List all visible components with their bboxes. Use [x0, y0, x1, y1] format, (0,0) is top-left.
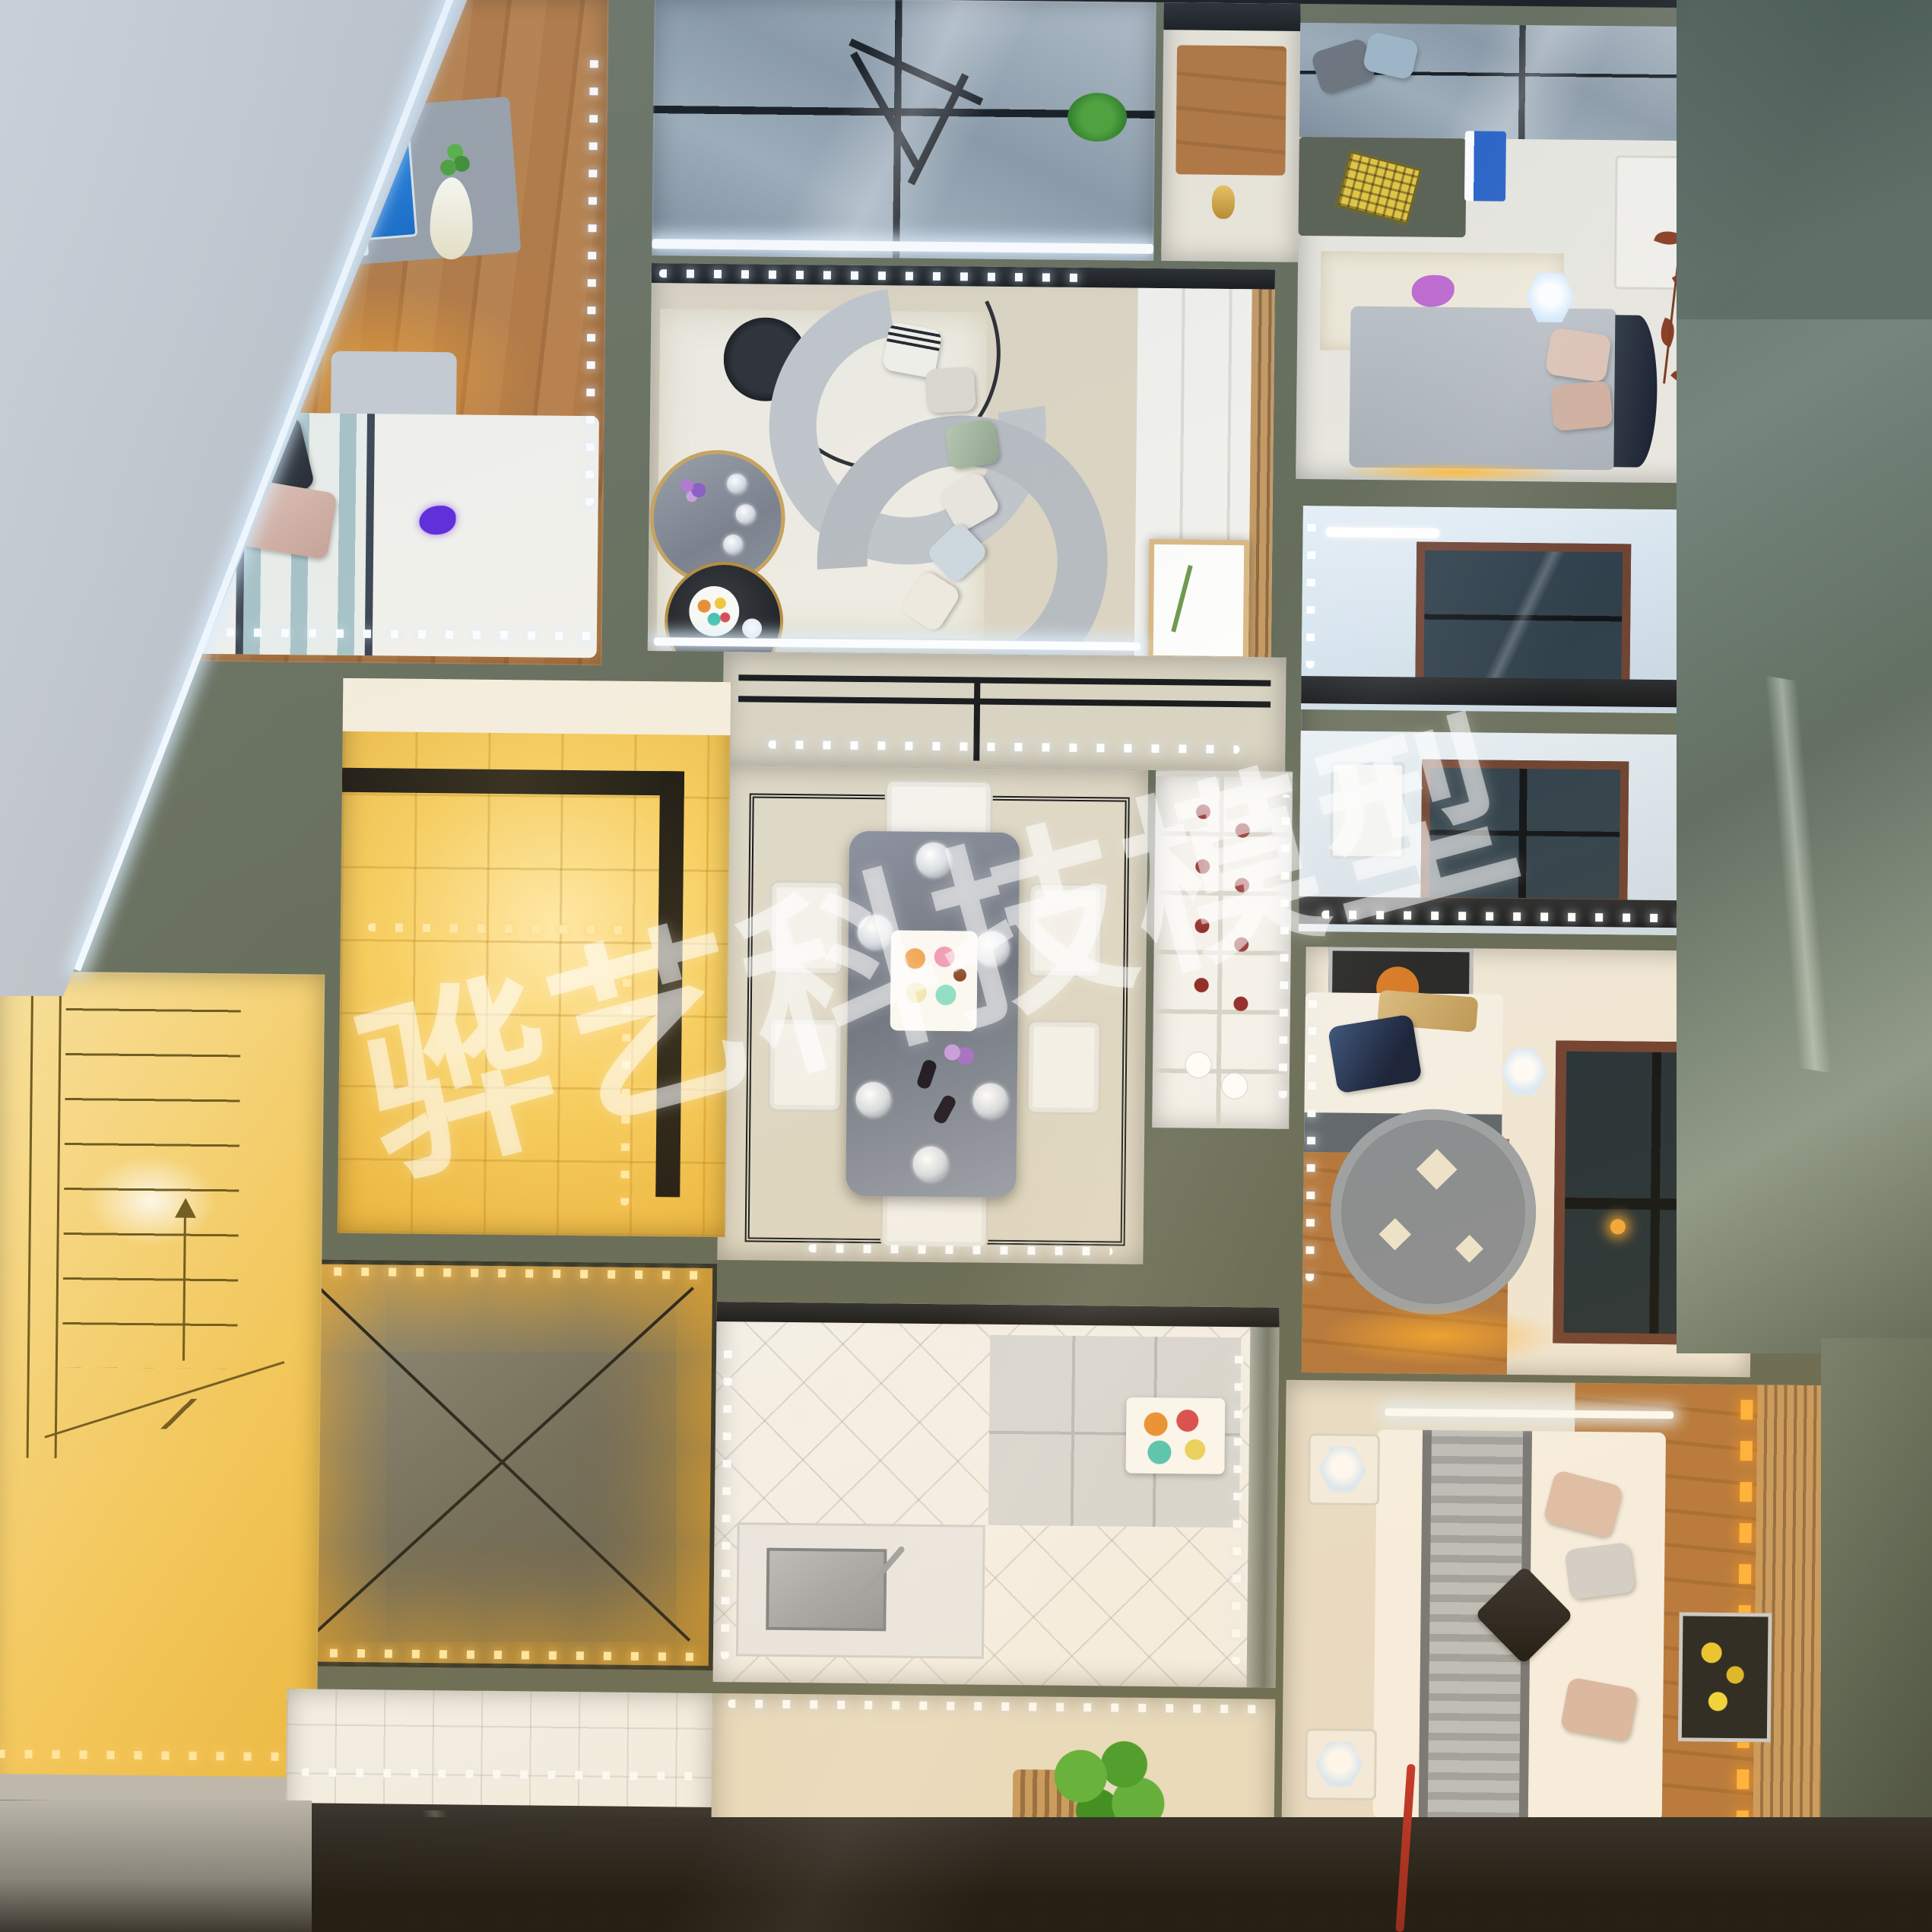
wood-slat-trim [1248, 289, 1275, 657]
living-room [648, 263, 1275, 658]
break-symbol [156, 1398, 201, 1429]
warm-underglow [1317, 1304, 1561, 1367]
kitchen [713, 1302, 1280, 1688]
bed-underglow [1341, 462, 1569, 484]
metal-table-silhouette [849, 39, 983, 106]
tv-feature-wall [1134, 288, 1275, 658]
potted-plant [1068, 93, 1128, 142]
navy-pillow [1328, 1014, 1423, 1093]
steel-trim [1247, 1327, 1280, 1687]
lotus-candle [742, 618, 762, 638]
scale-model-photo: Windows 7 [0, 0, 1932, 1932]
glass-spheres [1175, 1044, 1267, 1113]
led-strip [652, 239, 1153, 254]
shoe-cabinet [1175, 45, 1286, 175]
stair-treads [62, 972, 241, 1369]
direction-arrow [175, 1198, 196, 1218]
blue-books [1464, 131, 1506, 201]
purple-flower [419, 506, 455, 535]
golden-vase [1212, 186, 1235, 219]
plant-fronds [438, 144, 472, 183]
pillow [925, 366, 976, 414]
blush-pillow [1543, 1469, 1624, 1538]
bed [1373, 1429, 1666, 1822]
metal-table-leg [850, 52, 920, 168]
fruit-tray [1125, 1397, 1225, 1474]
headboard [1613, 315, 1658, 468]
warm-reflection [1610, 1219, 1626, 1234]
skylight-x-panel [287, 1259, 718, 1670]
bottle [931, 1093, 957, 1125]
blush-pillow [1560, 1677, 1639, 1742]
glass-sunroom [652, 0, 1156, 261]
bedroom-bottom-right [1281, 1380, 1834, 1880]
backlit-floorplan [0, 971, 325, 1803]
gray-pillow [1564, 1542, 1635, 1600]
green-marble-table [1677, 0, 1932, 1353]
champagne-pillow [1550, 380, 1613, 431]
counter [736, 1522, 985, 1658]
champagne-pillow [1545, 327, 1612, 382]
black-marble-band [342, 768, 684, 796]
crystal-pendant [1501, 1046, 1547, 1099]
metal-chair-silhouette [908, 73, 969, 186]
stair-rail [27, 972, 62, 1458]
fruit-plate [689, 586, 740, 637]
framed-artwork [1148, 539, 1250, 658]
table-edge-slab [0, 1800, 312, 1932]
towel-bar [1325, 527, 1439, 538]
marble-coffee-table [653, 453, 782, 582]
flower-vase [675, 473, 709, 503]
ginkgo-artwork [1678, 1612, 1772, 1742]
foyer [1161, 2, 1301, 262]
sage-pillow [944, 418, 1001, 470]
green-marble-table [1821, 1338, 1932, 1840]
